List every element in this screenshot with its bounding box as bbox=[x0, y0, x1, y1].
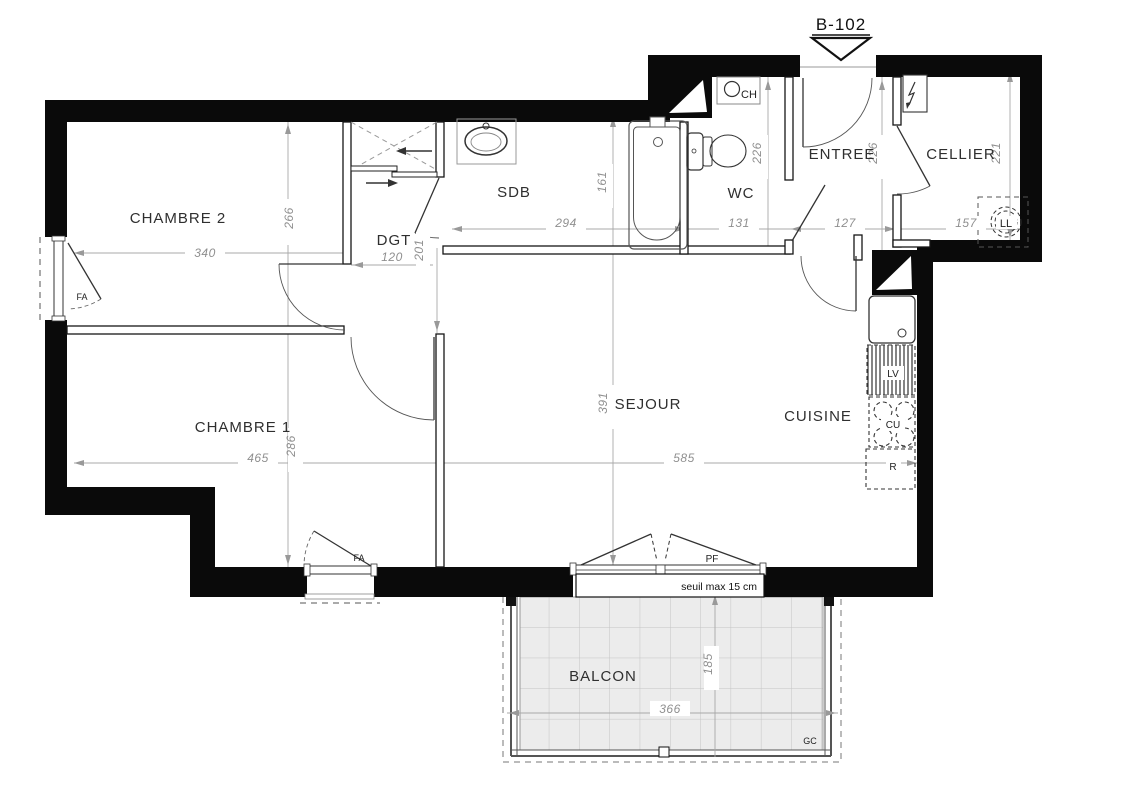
balcony-post-right bbox=[824, 596, 834, 606]
dim-chambre2-width: 340 bbox=[194, 246, 216, 260]
tag-cu: CU bbox=[886, 420, 900, 431]
window-pf-sejour bbox=[570, 534, 766, 575]
tag-pf: PF bbox=[706, 554, 719, 565]
dim-sejour-width: 585 bbox=[673, 451, 695, 465]
tag-r: R bbox=[889, 462, 896, 473]
unit-entrance-arrow-icon bbox=[812, 38, 870, 60]
tag-ll: LL bbox=[1000, 218, 1012, 230]
dim-wc-width: 131 bbox=[728, 216, 750, 230]
tag-fa-chambre2: FA bbox=[76, 292, 87, 302]
door-chambre1 bbox=[351, 337, 434, 420]
toilet-icon bbox=[687, 133, 746, 170]
dim-bath-length: 161 bbox=[595, 171, 609, 193]
door-entree-sejour bbox=[801, 256, 856, 311]
dim-entree-width: 127 bbox=[834, 216, 856, 230]
dim-chambre1-depth: 286 bbox=[284, 435, 298, 458]
unit-label: B-102 bbox=[816, 15, 866, 34]
dim-balcon-width: 366 bbox=[659, 702, 681, 716]
dim-chambre1-width: 465 bbox=[247, 451, 269, 465]
room-label-sejour: SEJOUR bbox=[615, 396, 682, 413]
washbasin-icon bbox=[457, 119, 516, 164]
room-label-chambre2: CHAMBRE 2 bbox=[130, 210, 227, 227]
electrical-panel-icon bbox=[903, 75, 927, 112]
door-chambre2 bbox=[279, 264, 345, 330]
room-label-cellier: CELLIER bbox=[926, 146, 996, 163]
room-label-balcon: BALCON bbox=[569, 668, 637, 685]
room-label-dgt: DGT bbox=[377, 232, 412, 249]
sliding-door-arrow-left-icon bbox=[396, 147, 432, 155]
threshold-note: seuil max 15 cm bbox=[576, 574, 764, 597]
balcony-post-left bbox=[506, 596, 516, 606]
room-label-wc: WC bbox=[728, 185, 755, 202]
floor-plan-drawing: seuil max 15 cm bbox=[0, 0, 1129, 800]
tag-fa-chambre1: FA bbox=[353, 553, 364, 563]
dim-sejour-depth: 391 bbox=[596, 392, 610, 414]
tag-gc: GC bbox=[803, 736, 817, 746]
tag-ch: CH bbox=[741, 89, 757, 101]
sliding-door-arrow-right-icon bbox=[366, 179, 398, 187]
dim-chambre2-depth: 266 bbox=[282, 207, 296, 230]
balcony bbox=[503, 596, 841, 762]
floor-plan-page: seuil max 15 cm bbox=[0, 0, 1129, 800]
duct-kitchen bbox=[872, 250, 917, 295]
room-label-chambre1: CHAMBRE 1 bbox=[195, 419, 292, 436]
balcony-post-center bbox=[659, 747, 669, 757]
balcony-tiles bbox=[520, 597, 823, 750]
kitchen-sink-icon bbox=[869, 296, 915, 343]
dim-cellier-width: 157 bbox=[955, 216, 977, 230]
duct-wc bbox=[665, 75, 712, 118]
dim-dgt-width: 120 bbox=[381, 250, 403, 264]
window-fa-chambre2 bbox=[40, 236, 101, 321]
tag-lv: LV bbox=[887, 369, 899, 380]
room-label-cuisine: CUISINE bbox=[784, 408, 852, 425]
unit-marker: B-102 bbox=[812, 15, 870, 60]
dim-sdb-width: 294 bbox=[554, 216, 577, 230]
room-label-entree: ENTREE bbox=[809, 146, 876, 163]
window-fa-chambre1 bbox=[300, 531, 380, 603]
dim-dgt-length: 201 bbox=[412, 239, 426, 262]
door-sdb bbox=[415, 178, 439, 238]
door-wc bbox=[792, 185, 825, 241]
door-cellier bbox=[897, 126, 930, 194]
dim-wc-depth: 226 bbox=[750, 142, 764, 165]
door-entrance bbox=[800, 67, 876, 147]
room-label-sdb: SDB bbox=[497, 184, 531, 201]
closet-icon bbox=[351, 122, 437, 187]
dim-balcon-depth: 185 bbox=[701, 653, 715, 675]
threshold-note-text: seuil max 15 cm bbox=[681, 581, 757, 593]
